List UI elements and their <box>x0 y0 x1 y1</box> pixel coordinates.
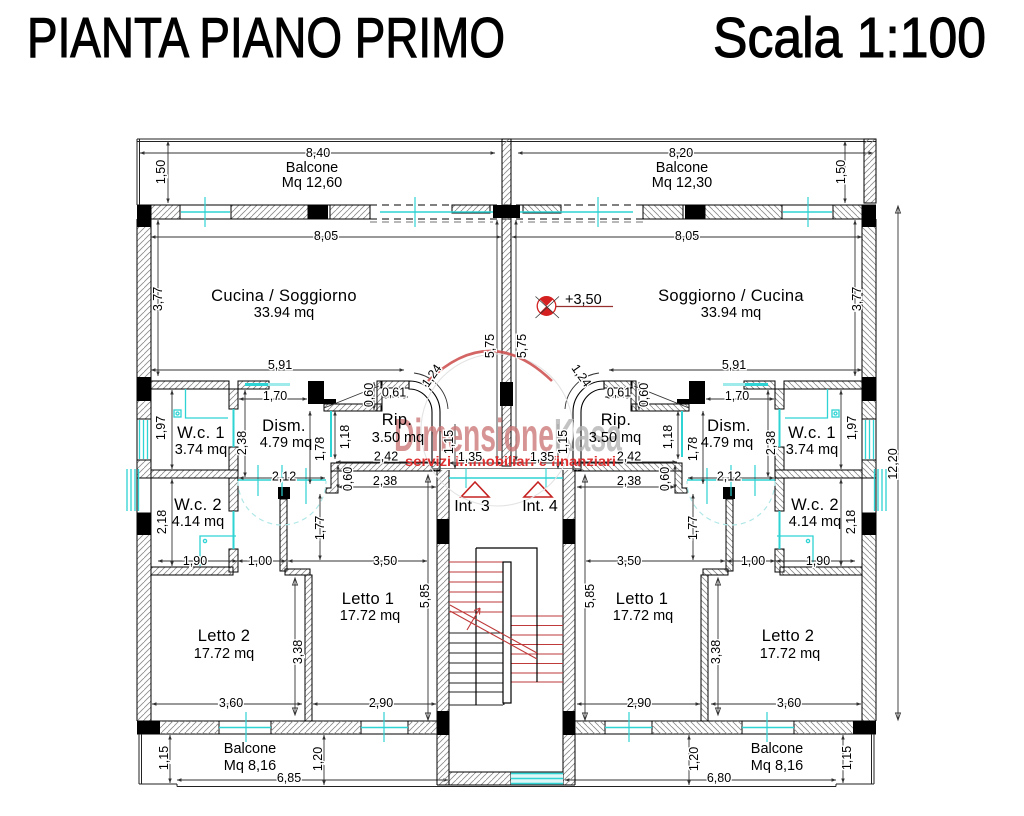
svg-text:8,40: 8,40 <box>306 146 330 160</box>
svg-text:Int. 3: Int. 3 <box>454 498 490 515</box>
svg-text:1,77: 1,77 <box>313 516 327 540</box>
svg-text:servizi immobiliari e finanzia: servizi immobiliari e finanziari <box>405 453 616 469</box>
svg-text:2,38: 2,38 <box>617 474 641 488</box>
svg-text:0,60: 0,60 <box>362 383 376 407</box>
svg-text:5,85: 5,85 <box>583 584 597 608</box>
svg-text:5,75: 5,75 <box>483 334 497 358</box>
svg-text:2,42: 2,42 <box>617 450 641 464</box>
svg-text:1,24: 1,24 <box>419 362 444 390</box>
svg-text:1,15: 1,15 <box>442 430 456 454</box>
svg-text:Soggiorno / Cucina: Soggiorno / Cucina <box>658 287 804 305</box>
svg-text:Balcone: Balcone <box>224 741 276 757</box>
svg-text:33.94 mq: 33.94 mq <box>254 305 314 321</box>
svg-text:2,90: 2,90 <box>369 696 393 710</box>
svg-text:Balcone: Balcone <box>751 741 803 757</box>
svg-text:Letto 1: Letto 1 <box>342 590 395 608</box>
svg-text:4.14 mq: 4.14 mq <box>789 514 841 530</box>
svg-text:2,18: 2,18 <box>844 510 858 534</box>
svg-text:1,15: 1,15 <box>556 430 570 454</box>
svg-text:Dism.: Dism. <box>707 417 751 435</box>
svg-text:W.c. 2: W.c. 2 <box>791 496 839 514</box>
svg-text:1,18: 1,18 <box>661 425 675 449</box>
svg-text:2,12: 2,12 <box>717 470 741 484</box>
svg-text:1,15: 1,15 <box>840 746 854 770</box>
svg-text:Balcone: Balcone <box>656 160 708 176</box>
svg-text:6,85: 6,85 <box>277 771 301 785</box>
svg-text:1,50: 1,50 <box>834 160 848 184</box>
svg-text:2,90: 2,90 <box>627 696 651 710</box>
svg-text:8,05: 8,05 <box>314 229 338 243</box>
svg-text:1,00: 1,00 <box>248 554 272 568</box>
svg-text:8,20: 8,20 <box>669 146 693 160</box>
svg-text:12,20: 12,20 <box>886 448 900 479</box>
svg-text:1,20: 1,20 <box>687 747 701 771</box>
svg-text:2,42: 2,42 <box>374 450 398 464</box>
svg-text:17.72 mq: 17.72 mq <box>760 646 820 662</box>
svg-text:1,35: 1,35 <box>458 450 482 464</box>
svg-text:Dism.: Dism. <box>262 417 306 435</box>
svg-text:3,77: 3,77 <box>151 287 165 311</box>
svg-text:PIANTA PIANO PRIMO: PIANTA PIANO PRIMO <box>27 6 505 70</box>
svg-text:W.c. 1: W.c. 1 <box>788 424 836 442</box>
svg-text:Letto 2: Letto 2 <box>762 627 815 645</box>
svg-text:3.74 mq: 3.74 mq <box>786 442 838 458</box>
svg-text:W.c. 2: W.c. 2 <box>174 496 222 514</box>
svg-text:3,60: 3,60 <box>219 696 243 710</box>
svg-text:Mq 12,60: Mq 12,60 <box>282 175 342 191</box>
svg-text:3,50: 3,50 <box>373 554 397 568</box>
svg-text:1,97: 1,97 <box>845 416 859 440</box>
svg-text:3,77: 3,77 <box>850 287 864 311</box>
svg-text:Cucina / Soggiorno: Cucina / Soggiorno <box>211 287 357 305</box>
svg-text:17.72 mq: 17.72 mq <box>613 608 673 624</box>
svg-text:1,35: 1,35 <box>530 450 554 464</box>
svg-text:3.50 mq: 3.50 mq <box>589 430 641 446</box>
svg-text:2,38: 2,38 <box>235 431 249 455</box>
svg-text:0,61: 0,61 <box>607 386 631 400</box>
svg-text:8,05: 8,05 <box>675 229 699 243</box>
svg-text:3.74 mq: 3.74 mq <box>175 442 227 458</box>
svg-text:Letto 1: Letto 1 <box>616 590 669 608</box>
svg-text:1,97: 1,97 <box>154 416 168 440</box>
svg-text:5,85: 5,85 <box>418 584 432 608</box>
svg-text:1,18: 1,18 <box>338 425 352 449</box>
svg-text:4.14 mq: 4.14 mq <box>172 514 224 530</box>
svg-text:Rip.: Rip. <box>382 411 413 429</box>
svg-text:0,60: 0,60 <box>637 383 651 407</box>
svg-text:+3,50: +3,50 <box>565 292 602 308</box>
svg-text:2,18: 2,18 <box>155 510 169 534</box>
svg-text:2,38: 2,38 <box>373 474 397 488</box>
svg-text:Int. 4: Int. 4 <box>522 498 558 515</box>
svg-text:Mq 8,16: Mq 8,16 <box>751 758 803 774</box>
svg-text:Mq 12,30: Mq 12,30 <box>652 175 712 191</box>
svg-text:3,38: 3,38 <box>291 640 305 664</box>
svg-text:Balcone: Balcone <box>286 160 338 176</box>
svg-text:6,80: 6,80 <box>707 771 731 785</box>
svg-text:1,70: 1,70 <box>725 389 749 403</box>
svg-text:Scala 1:100: Scala 1:100 <box>713 6 986 70</box>
svg-text:3,38: 3,38 <box>709 640 723 664</box>
svg-text:1,15: 1,15 <box>157 746 171 770</box>
svg-text:5,91: 5,91 <box>722 358 746 372</box>
svg-text:Rip.: Rip. <box>601 411 632 429</box>
svg-text:0,61: 0,61 <box>382 386 406 400</box>
svg-text:Mq 8,16: Mq 8,16 <box>224 758 276 774</box>
svg-text:1,20: 1,20 <box>311 747 325 771</box>
svg-text:3,50: 3,50 <box>617 554 641 568</box>
svg-text:1,50: 1,50 <box>154 160 168 184</box>
svg-text:3.50 mq: 3.50 mq <box>372 430 424 446</box>
svg-text:1,78: 1,78 <box>313 437 327 461</box>
svg-text:4.79 mq: 4.79 mq <box>701 435 753 451</box>
svg-text:3,60: 3,60 <box>777 696 801 710</box>
svg-text:1,70: 1,70 <box>263 389 287 403</box>
svg-text:W.c. 1: W.c. 1 <box>177 424 225 442</box>
svg-text:5,75: 5,75 <box>515 334 529 358</box>
svg-text:1,90: 1,90 <box>183 554 207 568</box>
svg-text:Letto 2: Letto 2 <box>198 627 251 645</box>
svg-text:1,78: 1,78 <box>686 437 700 461</box>
svg-text:0,60: 0,60 <box>658 467 672 491</box>
svg-text:17.72 mq: 17.72 mq <box>194 646 254 662</box>
svg-text:0,60: 0,60 <box>341 467 355 491</box>
svg-text:1,90: 1,90 <box>806 554 830 568</box>
svg-text:2,12: 2,12 <box>272 470 296 484</box>
svg-text:1,77: 1,77 <box>686 516 700 540</box>
svg-text:33.94 mq: 33.94 mq <box>701 305 761 321</box>
svg-text:4.79 mq: 4.79 mq <box>260 435 312 451</box>
svg-text:17.72 mq: 17.72 mq <box>340 608 400 624</box>
svg-text:1,00: 1,00 <box>741 554 765 568</box>
svg-text:5,91: 5,91 <box>268 358 292 372</box>
svg-text:2,38: 2,38 <box>764 431 778 455</box>
